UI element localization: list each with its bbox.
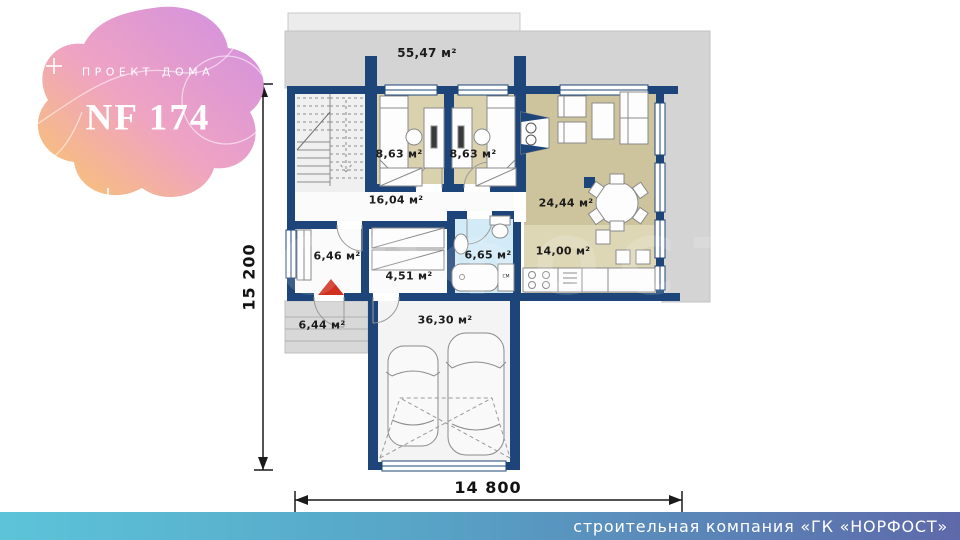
fireplace <box>521 112 549 154</box>
room-label-bedroom-2: 8,63 м² <box>450 148 497 161</box>
logo: ПРОЕКТ ДОМА NF 174 <box>18 0 278 214</box>
room-label-bathroom: 6,65 м² <box>465 249 512 262</box>
room-label-corridor: 4,51 м² <box>386 270 433 283</box>
washing-machine-label: СМ <box>502 275 509 280</box>
logo-subtitle: ПРОЕКТ ДОМА <box>82 66 214 79</box>
room-label-hallway: 16,04 м² <box>369 194 424 207</box>
room-label-entry: 6,46 м² <box>314 250 361 263</box>
logo-title: NF 174 <box>86 97 211 140</box>
room-label-bedroom-1: 8,63 м² <box>376 148 423 161</box>
room-label-porch: 6,44 м² <box>299 319 346 332</box>
floor-plan-page: НОРФОСТ 55,47 м² 8,63 м² 8,63 м² 16,04 м… <box>0 0 960 540</box>
dimension-height: 15 200 <box>240 243 259 310</box>
room-label-garage: 36,30 м² <box>418 314 473 327</box>
company-name: строительная компания «ГК «НОРФОСТ» <box>573 517 960 536</box>
room-label-kitchen: 14,00 м² <box>536 245 591 258</box>
room-label-terrace: 55,47 м² <box>397 46 457 60</box>
dimension-width: 14 800 <box>454 478 521 497</box>
footer-bar: строительная компания «ГК «НОРФОСТ» <box>0 512 960 540</box>
room-label-living: 24,44 м² <box>539 197 594 210</box>
roof-outline <box>288 13 520 32</box>
